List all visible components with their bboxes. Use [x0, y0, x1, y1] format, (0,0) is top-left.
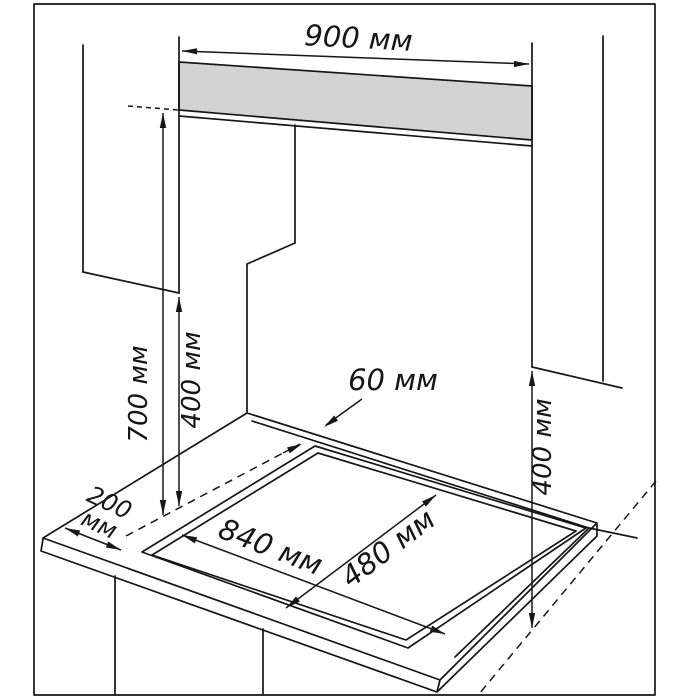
dimension-counter-to-hood: 700 мм	[124, 113, 166, 515]
dimension-side-gap: 200 мм	[65, 480, 136, 550]
right-cabinet	[532, 36, 622, 388]
middle-cabinet	[247, 125, 295, 412]
rear-gap-label: 60 мм	[348, 363, 438, 397]
dimension-rear-gap: 60 мм	[324, 363, 438, 427]
left-cabinet	[83, 37, 179, 293]
hood-band	[179, 62, 532, 140]
cutout-length-label: 840 мм	[214, 511, 327, 582]
dimension-left-clearance: 400 мм	[176, 297, 207, 506]
counter-to-hood-label: 700 мм	[124, 345, 154, 442]
left-clearance-label: 400 мм	[177, 331, 207, 428]
diagram-canvas: 900 мм 700 мм 400 мм 400 мм 60 мм 200 мм	[0, 0, 700, 700]
cutout-depth-label: 480 мм	[334, 502, 441, 594]
dimension-hood-width: 900 мм	[182, 18, 529, 67]
wall-dashed-line-top	[128, 106, 178, 110]
dashed-leader-arrowhead	[287, 444, 302, 453]
hood-width-label: 900 мм	[304, 18, 414, 58]
right-clearance-label: 400 мм	[528, 398, 558, 495]
installation-diagram: 900 мм 700 мм 400 мм 400 мм 60 мм 200 мм	[0, 0, 700, 700]
